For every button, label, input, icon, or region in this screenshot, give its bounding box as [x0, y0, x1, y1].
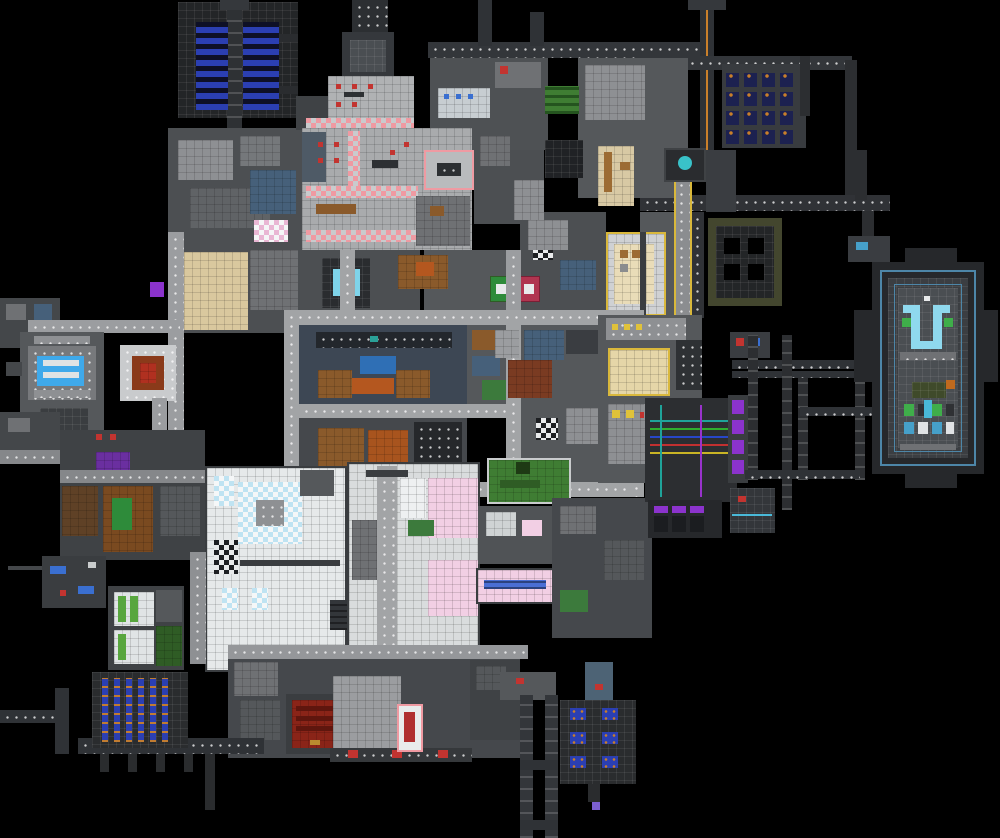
sat-cyan-walk: [903, 305, 911, 313]
sat-machine-orange: [946, 380, 955, 389]
machine-red: [736, 338, 744, 346]
chair-red: [334, 142, 339, 147]
med-room: [214, 476, 234, 506]
solar-panel: [570, 708, 586, 720]
server-rack: [932, 422, 942, 434]
solar-strip: [126, 678, 132, 742]
cell: [690, 516, 704, 532]
table-blue: [78, 586, 94, 594]
outpost-base: [42, 556, 106, 608]
maintenance: [62, 486, 98, 536]
cell-door: [654, 506, 668, 513]
office-center: [524, 284, 534, 294]
pew: [296, 716, 334, 721]
sat-door: [924, 400, 932, 418]
chair-red: [110, 434, 116, 440]
solar-cells-ne: [726, 68, 798, 144]
pipe-red: [650, 444, 730, 446]
chair-red: [336, 84, 341, 89]
cafe-stripe: [306, 186, 418, 198]
hydroponics: [545, 86, 579, 114]
catwalk-stub: [855, 150, 867, 200]
machine-red: [516, 678, 524, 684]
atmospherics: [645, 398, 737, 502]
catwalk-v: [782, 335, 792, 510]
corridor-h: [60, 470, 206, 483]
conference-room: [438, 88, 490, 118]
room-floor: [156, 590, 182, 622]
hazard-line: [674, 160, 676, 315]
pew: [296, 726, 334, 731]
pipe-blue: [650, 436, 730, 438]
table-blue: [50, 566, 66, 574]
main-ring-top: [284, 310, 644, 325]
corridor-stub: [530, 12, 544, 46]
arm-leg: [128, 754, 137, 772]
catwalk-v: [798, 378, 808, 480]
sat-tab-right: [980, 310, 998, 382]
hazard-line: [690, 160, 692, 315]
sci-room-pink: [428, 478, 478, 538]
courtroom: [508, 360, 552, 398]
catwalk-h: [745, 470, 860, 479]
plant-tray: [118, 634, 126, 660]
server-rack: [946, 404, 954, 416]
room-floor: [604, 540, 644, 580]
sat-machines: [900, 352, 956, 360]
window: [856, 242, 868, 250]
gas-chamber: [732, 420, 744, 434]
table: [430, 206, 444, 216]
bridge-wood: [396, 370, 430, 398]
catwalk-h: [800, 407, 876, 416]
arm-leg: [205, 754, 215, 810]
rug-orange: [416, 262, 434, 276]
antenna: [6, 362, 22, 376]
engi-floor: [608, 348, 670, 396]
chair-red: [334, 158, 339, 163]
engine-machines: [34, 336, 90, 344]
gravity-generator: [678, 156, 692, 170]
crate: [620, 264, 628, 272]
chair-red: [336, 102, 341, 107]
containment-pit: [724, 238, 740, 254]
altar: [310, 740, 320, 745]
tracker: [592, 802, 600, 810]
solar-panel: [602, 756, 618, 768]
sat-cyan-walk: [942, 305, 950, 313]
cafeteria-upper: [328, 76, 414, 122]
machine-white: [88, 562, 96, 568]
arm-leg: [184, 754, 193, 772]
tower-room: [350, 40, 386, 72]
pipe-purple: [700, 405, 702, 497]
gas-chamber: [732, 440, 744, 454]
rooms-base: [585, 662, 613, 700]
sat-flora-table: [912, 382, 946, 398]
solar-stub: [588, 784, 600, 802]
corridor-v: [190, 552, 206, 664]
solar-stub: [279, 34, 298, 42]
corridor-v: [506, 250, 521, 310]
theatre-stage: [150, 282, 164, 297]
machine-yellow: [636, 324, 642, 330]
machine-red: [738, 496, 746, 502]
office-green: [482, 380, 506, 400]
solar-strip: [114, 678, 120, 742]
plant-tray: [130, 596, 138, 622]
checker-floor: [536, 418, 558, 440]
cafe-stripe: [348, 131, 360, 189]
pew: [296, 706, 334, 711]
containment-pit: [748, 264, 764, 280]
bridge-carpet: [360, 356, 396, 374]
garden-dark: [156, 626, 182, 666]
chair: [444, 94, 449, 99]
sat-tab-bottom: [905, 470, 957, 488]
escape-pod: [438, 750, 448, 758]
room-floor: [560, 506, 596, 534]
room-floor: [250, 250, 298, 310]
morgue-checker: [214, 540, 238, 574]
floor-sign: [366, 470, 408, 477]
sci-room-pink: [428, 560, 478, 616]
escape-carpet: [404, 712, 415, 742]
catwalk-h: [520, 820, 558, 830]
pool-table: [112, 498, 132, 530]
solar-strip: [162, 678, 168, 742]
crate: [632, 250, 640, 258]
park-benches: [500, 480, 540, 488]
room-floor: [178, 140, 233, 180]
solar-panel: [602, 732, 618, 744]
smes-room: [676, 340, 702, 390]
pipe-yellow: [650, 452, 730, 454]
room-floor: [486, 512, 516, 536]
solar-strip: [138, 678, 144, 742]
sci-room: [400, 478, 426, 518]
room-floor: [480, 136, 510, 166]
room-floor: [560, 260, 596, 290]
corridor-south: [228, 645, 528, 659]
solar-trunk-nw: [227, 0, 242, 130]
corridor-v: [690, 212, 704, 318]
pipe-teal: [732, 514, 772, 516]
outpost-room: [848, 236, 890, 262]
solar-panel: [570, 756, 586, 768]
machine: [500, 66, 508, 74]
med-storage: [300, 470, 334, 496]
solar-panels-nw: [243, 22, 279, 110]
console-teal: [370, 336, 378, 342]
med-wall: [240, 560, 340, 566]
solar-cap-ne: [688, 0, 726, 10]
office-blue: [472, 356, 500, 376]
chair-red: [318, 142, 323, 147]
arm-leg: [156, 754, 165, 772]
solar-cap-nw: [220, 0, 249, 10]
engi-hall: [606, 318, 686, 340]
storage: [302, 132, 326, 182]
room-floor: [495, 330, 519, 358]
machine-red: [60, 590, 66, 596]
room-floor: [240, 700, 280, 740]
office-center: [496, 284, 506, 294]
table: [620, 162, 630, 170]
pipe-green: [650, 428, 730, 430]
gas-chamber: [732, 460, 744, 474]
catwalk-h: [520, 760, 558, 770]
tower-cap: [352, 0, 388, 34]
pipe-teal: [650, 420, 730, 422]
med-room: [252, 588, 268, 610]
tree: [516, 462, 530, 474]
sat-cyan-walk: [911, 341, 942, 349]
solar-panels-nw: [196, 22, 228, 110]
machine-yellow: [612, 324, 618, 330]
chair-red: [96, 434, 102, 440]
vault: [184, 252, 248, 330]
chair: [456, 94, 461, 99]
chair-red: [352, 102, 357, 107]
chair-red: [404, 142, 409, 147]
solar-stub: [279, 86, 298, 94]
server-rack: [904, 422, 914, 434]
kitchen-counter: [437, 163, 461, 176]
storage: [416, 196, 470, 246]
machine-red: [595, 684, 603, 690]
sat-machines: [900, 444, 956, 450]
escape-pod: [348, 750, 358, 758]
bridge-consoles: [316, 332, 452, 348]
corridor-v: [340, 250, 355, 310]
arm-h: [0, 710, 60, 723]
arm-leg: [100, 754, 109, 772]
catwalk-v: [748, 335, 758, 480]
server-rack: [932, 404, 942, 416]
theatre: [96, 452, 130, 470]
machine-yellow: [612, 410, 620, 418]
bar-counter: [316, 204, 356, 214]
core: [140, 363, 156, 383]
sat-tab-left: [854, 310, 874, 382]
machine-yellow: [624, 324, 630, 330]
solar-panel: [602, 708, 618, 720]
corridor-stub: [478, 0, 492, 46]
power-cable: [706, 10, 708, 158]
chair-red: [318, 158, 323, 163]
chair-red: [352, 84, 357, 89]
solar-panel: [570, 732, 586, 744]
engine-machines: [43, 372, 79, 378]
cafe-stripe: [306, 230, 418, 242]
room-floor: [8, 418, 30, 432]
machine-yellow: [626, 410, 634, 418]
maint-cells: [730, 488, 775, 533]
sat-machine-green: [944, 318, 953, 327]
room-floor: [160, 486, 200, 536]
antenna-line: [8, 566, 42, 570]
med-room: [222, 588, 238, 610]
room-floor: [585, 65, 645, 120]
xenobio: [408, 520, 434, 536]
gas-chamber: [732, 400, 744, 414]
station-map: [0, 0, 1000, 838]
server-rack: [904, 404, 914, 416]
plaza: [333, 676, 401, 750]
medbay-core: [256, 500, 284, 526]
room-floor: [6, 304, 26, 320]
cargo-belt: [640, 232, 646, 316]
garden: [560, 590, 588, 612]
office-blue: [524, 330, 564, 360]
crate: [620, 250, 628, 258]
sat-console: [924, 296, 930, 301]
room-floor: [234, 662, 278, 696]
engine-machines: [34, 390, 90, 398]
conference-table: [352, 378, 394, 394]
containment-inner: [716, 226, 774, 298]
table-dark: [372, 160, 398, 168]
room-floor: [34, 304, 52, 320]
cell: [672, 516, 686, 532]
cell: [654, 516, 668, 532]
server-rack: [918, 422, 928, 434]
bookshelf: [604, 152, 612, 192]
room-floor: [528, 220, 568, 250]
engine-machines: [43, 360, 79, 366]
solar-strip: [150, 678, 156, 742]
room-floor: [240, 136, 280, 166]
room-floor: [250, 170, 296, 214]
containment-pit: [724, 264, 740, 280]
table-dark: [344, 92, 364, 97]
pipe-teal: [660, 405, 662, 497]
solar-rail: [800, 56, 810, 116]
conveyor: [484, 580, 546, 589]
cell-door: [690, 506, 704, 513]
server-rack: [946, 422, 954, 434]
containment-pit: [748, 238, 764, 254]
chair: [468, 94, 473, 99]
cell-door: [672, 506, 686, 513]
server-room: [545, 140, 583, 178]
bridge-wood: [318, 370, 352, 398]
chair-red: [390, 150, 395, 155]
chair-red: [368, 84, 373, 89]
sat-machine-green: [902, 318, 911, 327]
solar-strip: [102, 678, 108, 742]
room-pink: [522, 520, 542, 536]
rooms-base: [706, 150, 736, 212]
dorm-checker: [254, 220, 288, 242]
plant-tray: [118, 596, 126, 622]
room-floor: [514, 180, 544, 220]
